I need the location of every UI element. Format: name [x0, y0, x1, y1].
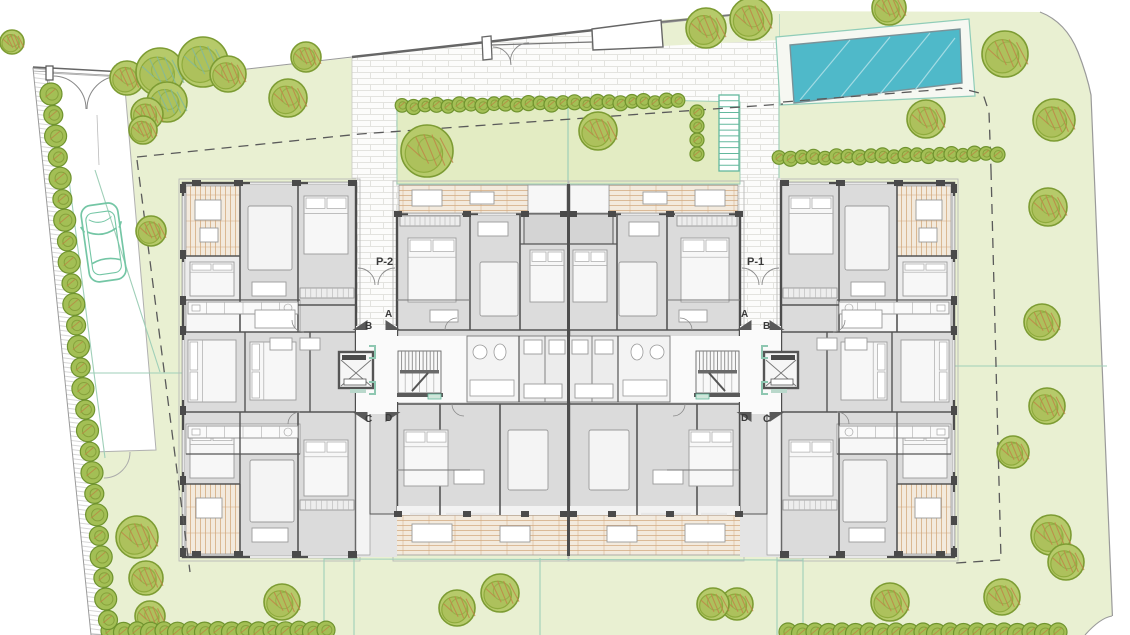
svg-text:D: D	[385, 413, 392, 424]
svg-text:C: C	[763, 414, 770, 425]
svg-text:A: A	[385, 309, 392, 320]
svg-text:C: C	[365, 414, 372, 425]
svg-text:D: D	[741, 413, 748, 424]
svg-text:P-1: P-1	[747, 256, 764, 268]
svg-text:B: B	[365, 321, 372, 332]
svg-text:P-2: P-2	[376, 256, 393, 268]
svg-text:B: B	[763, 321, 770, 332]
svg-text:A: A	[741, 309, 748, 320]
